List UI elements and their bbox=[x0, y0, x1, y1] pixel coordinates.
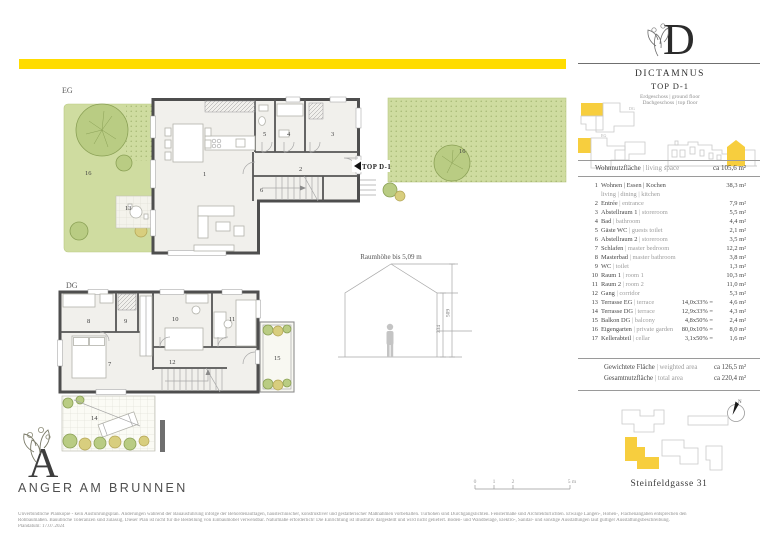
divider bbox=[578, 390, 760, 391]
room-row: 5Gäste WC | guests toilet2,1 m² bbox=[588, 226, 746, 235]
weighted-area-row: Gewichtete Fläche | weighted area ca 126… bbox=[604, 363, 746, 374]
room-number-11: 11 bbox=[229, 316, 235, 323]
room-number-8: 8 bbox=[87, 318, 90, 325]
unit-monogram-logo: D bbox=[630, 4, 710, 62]
living-space-row: Wohnnutzfläche | living space ca 105,6 m… bbox=[578, 162, 760, 175]
tree-icon bbox=[76, 104, 128, 156]
room-row: 3Abstellraum 1 | storeroom5,5 m² bbox=[588, 208, 746, 217]
compass-n-label: N bbox=[738, 400, 742, 405]
eg-label: EG bbox=[62, 86, 73, 95]
brand-monogram: A bbox=[24, 427, 59, 487]
room-row: 16Eigengarten | private garden80,0x10% =… bbox=[588, 325, 746, 334]
svg-text:TOP D-1: TOP D-1 bbox=[362, 164, 391, 171]
dim-509: 509 bbox=[446, 309, 452, 318]
locator-eg-label: EG bbox=[601, 133, 606, 138]
total-area-row: Gesamtnutzfläche | total area ca 220,4 m… bbox=[604, 374, 746, 385]
dg-label: DG bbox=[66, 281, 78, 290]
eg-garden-left: 13 16 bbox=[64, 104, 164, 252]
dg-floor-plan: DG bbox=[58, 281, 295, 452]
room-number-1: 1 bbox=[203, 171, 206, 178]
room-number-2: 2 bbox=[299, 166, 302, 173]
eg-garden-right: 16 bbox=[383, 98, 566, 201]
room-row: 12Gang | corridor5,3 m² bbox=[588, 289, 746, 298]
room-row: 2Entrée | entrance7,9 m² bbox=[588, 199, 746, 208]
svg-text:1: 1 bbox=[493, 479, 496, 485]
room-height-note: Raumhöhe bis 5,09 m bbox=[360, 253, 422, 261]
room-number-9: 9 bbox=[124, 318, 127, 325]
unit-top: TOP D-1 bbox=[596, 81, 744, 91]
disclaimer-line-2: Rohbaumaßen. Bauübliche Toleranzen sind … bbox=[18, 518, 760, 524]
room-row: 9WC | toilet1,3 m² bbox=[588, 262, 746, 271]
wall-segment bbox=[160, 420, 165, 452]
panel-divider bbox=[578, 63, 760, 64]
room-list: 1Wohnen | Essen | Kochen38,3 m²living | … bbox=[578, 181, 760, 343]
disclaimer: Unverbindliche Plankopie - kein Ausführu… bbox=[18, 512, 760, 531]
bush-icon bbox=[395, 191, 405, 201]
person-silhouette bbox=[387, 324, 394, 357]
svg-text:0: 0 bbox=[474, 479, 477, 485]
room-number-3: 3 bbox=[331, 131, 334, 138]
svg-text:2: 2 bbox=[512, 479, 515, 485]
scale-bar: 0 1 2 5 m bbox=[474, 479, 577, 489]
dim-334: 334 bbox=[436, 325, 442, 334]
dimension-lines: 334 509 bbox=[391, 264, 472, 357]
top-d1-marker: TOP D-1 bbox=[352, 160, 391, 172]
street-address: Steinfeldgasse 31 bbox=[578, 479, 760, 489]
area-totals: Gewichtete Fläche | weighted area ca 126… bbox=[578, 363, 760, 384]
room-row: 15Balkon DG | balcony4,8x50% =2,4 m² bbox=[588, 316, 746, 325]
room-row: 13Terrasse EG | terrace14,0x33% =4,6 m² bbox=[588, 298, 746, 307]
room-number-16: 16 bbox=[459, 148, 466, 155]
room-row: 7Schlafen | master bedroom12,2 m² bbox=[588, 244, 746, 253]
floor-plan-sheet: EG 13 bbox=[0, 0, 770, 545]
section-sketch: Raumhöhe bis 5,09 m 334 509 bbox=[338, 253, 472, 357]
room-row: 10Raum 1 | room 110,3 m² bbox=[588, 271, 746, 280]
room-row: 17Kellerabteil | cellar3,1x50% =1,6 m² bbox=[588, 334, 746, 343]
room-row: 6Abstellraum 2 | storeroom3,5 m² bbox=[588, 235, 746, 244]
divider bbox=[578, 358, 760, 359]
highlighted-building bbox=[625, 437, 659, 469]
svg-text:5 m: 5 m bbox=[568, 479, 577, 485]
locator-dg-label: DG bbox=[629, 106, 635, 111]
highlighted-unit-dg bbox=[581, 103, 603, 116]
room-number-12: 12 bbox=[169, 359, 176, 366]
room-number-14: 14 bbox=[91, 415, 98, 422]
room-row: 8Masterbad | master bathroom3,8 m² bbox=[588, 253, 746, 262]
room-number-15: 15 bbox=[274, 355, 281, 362]
entrance-steps bbox=[360, 180, 376, 195]
room-number-16: 16 bbox=[85, 170, 92, 177]
room-row-subtitle: living | dining | kitchen bbox=[588, 190, 746, 199]
compass-icon: N bbox=[728, 400, 745, 422]
unit-name: DICTAMNUS bbox=[596, 69, 744, 79]
eg-floor-plan: EG 13 bbox=[62, 86, 566, 256]
room-row: 1Wohnen | Essen | Kochen38,3 m² bbox=[588, 181, 746, 190]
divider bbox=[578, 160, 760, 161]
room-row: 14Terrasse DG | terrace12,9x33% =4,3 m² bbox=[588, 307, 746, 316]
dg-balcony: 15 bbox=[260, 322, 294, 392]
divider bbox=[578, 176, 760, 177]
bush-icon bbox=[116, 155, 132, 171]
room-number-10: 10 bbox=[172, 316, 179, 323]
room-number-5: 5 bbox=[263, 131, 266, 138]
highlighted-unit-eg bbox=[578, 138, 591, 153]
project-name: ANGER AM BRUNNEN bbox=[18, 481, 188, 495]
bush-icon bbox=[70, 222, 88, 240]
room-row: 11Raum 2 | room 211,0 m² bbox=[588, 280, 746, 289]
monogram-d: D bbox=[663, 15, 695, 62]
dg-terrace: 14 bbox=[62, 396, 155, 451]
disclaimer-line-3: Plandatum: 17.07.2024 bbox=[18, 524, 760, 530]
room-number-13: 13 bbox=[125, 205, 132, 212]
room-row: 4Bad | bathroom4,4 m² bbox=[588, 217, 746, 226]
site-plan: N bbox=[585, 396, 757, 478]
